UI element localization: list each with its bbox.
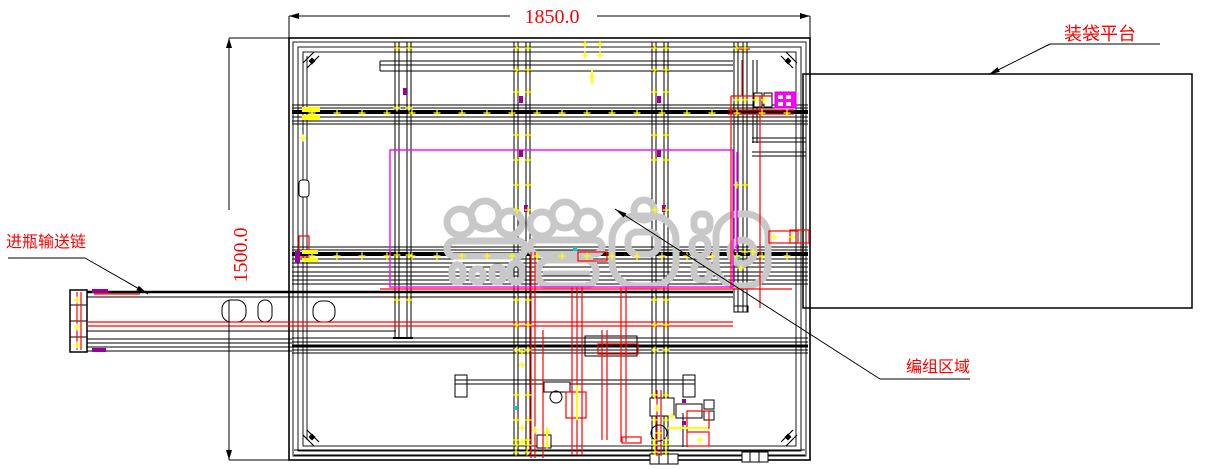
dim-arrow-bottom — [226, 450, 232, 460]
grouping-area-highlight-rect — [390, 150, 733, 287]
label-grouping-area: 编组区域 — [906, 358, 970, 376]
callout-bagging-platform: 装袋平台 — [988, 24, 1160, 75]
dimension-height: 1500.0 — [226, 38, 289, 460]
dimension-height-text: 1500.0 — [230, 228, 252, 283]
infeed-conveyor — [70, 290, 733, 352]
label-bagging-platform: 装袋平台 — [1064, 24, 1136, 44]
dimension-width-text: 1850.0 — [525, 6, 580, 28]
bagging-platform-outline — [803, 74, 1192, 308]
callout-infeed-conveyor: 进瓶输送链 — [6, 233, 148, 294]
dim-arrow-top — [226, 38, 232, 48]
machine-top-view-drawing: 1850.0 1500.0 装袋平台 进瓶输送链 编组区域 — [0, 0, 1206, 469]
dim-arrow-left — [289, 13, 299, 19]
dim-arrow-right — [800, 13, 810, 19]
label-infeed-conveyor: 进瓶输送链 — [6, 233, 86, 251]
watermark — [447, 200, 768, 286]
cad-drawing-canvas: 1850.0 1500.0 装袋平台 进瓶输送链 编组区域 — [0, 0, 1206, 469]
dimension-width: 1850.0 — [289, 6, 810, 38]
fastener-markers — [74, 41, 796, 456]
